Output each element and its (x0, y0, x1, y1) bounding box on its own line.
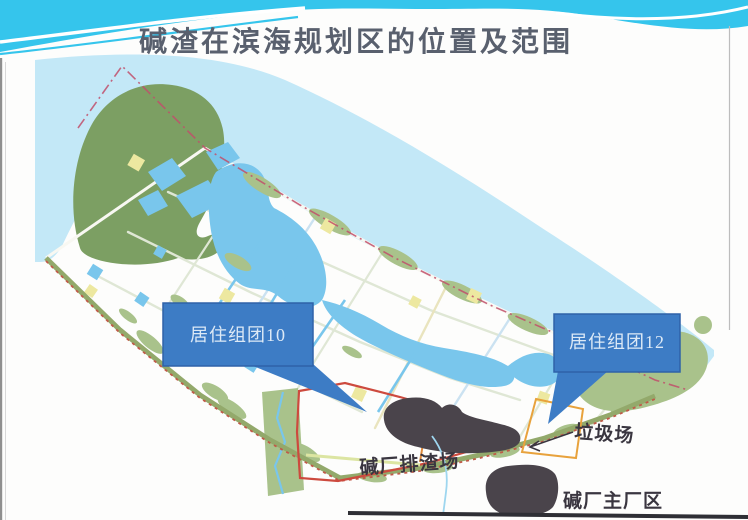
slag-site-label: 碱厂排渣场 (359, 449, 460, 479)
garbage-dump-label: 垃圾场 (574, 420, 635, 447)
callout-cluster12-label: 居住组团12 (569, 332, 665, 352)
callout-cluster10-label: 居住组团10 (190, 325, 286, 345)
slide-canvas: 碱厂排渣场 垃圾场 碱厂主厂区 居住组团10 居住组团12 碱渣在滨海规划区的位… (0, 0, 748, 520)
main-plant-blob (486, 465, 559, 516)
main-plant-label: 碱厂主厂区 (563, 489, 663, 512)
slide-title: 碱渣在滨海规划区的位置及范围 (0, 20, 712, 60)
slag-heap-blob (384, 397, 521, 453)
planning-map: 碱厂排渣场 垃圾场 碱厂主厂区 居住组团10 居住组团12 (0, 0, 748, 520)
